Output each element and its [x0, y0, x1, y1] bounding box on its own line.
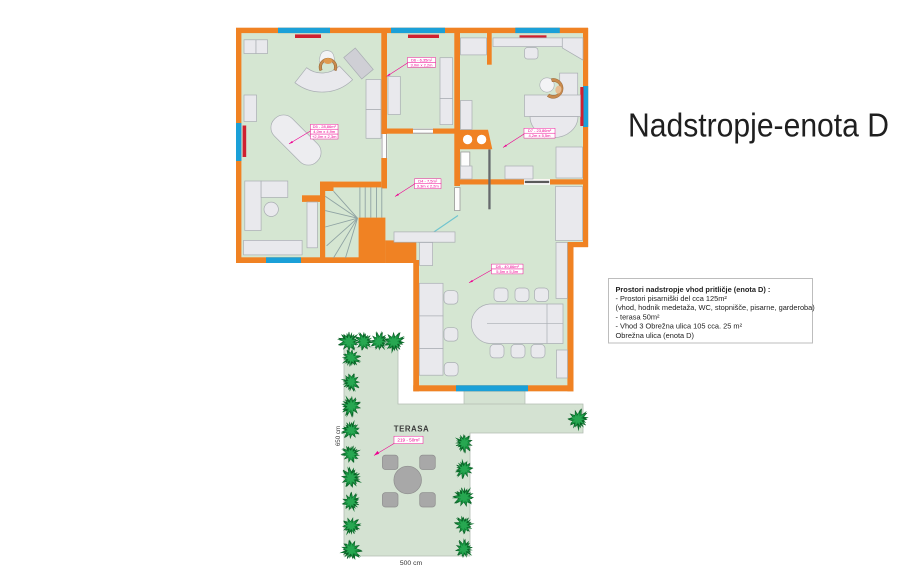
svg-text:650 cm: 650 cm — [335, 426, 342, 446]
svg-text:3,0m x 2,2m: 3,0m x 2,2m — [410, 62, 433, 67]
svg-text:- Vhod 3 Obrežna ulica 105 cc: - Vhod 3 Obrežna ulica 105 cca. 25 m² — [616, 322, 743, 331]
svg-text:Nadstropje-enota D: Nadstropje-enota D — [628, 107, 889, 144]
svg-text:3,3m x 2,2m: 3,3m x 2,2m — [417, 184, 440, 189]
svg-text:500 cm: 500 cm — [400, 560, 423, 567]
svg-text:Obrežna ulica (enota D): Obrežna ulica (enota D) — [616, 331, 694, 340]
svg-text:5,5m x 5,5m: 5,5m x 5,5m — [496, 269, 519, 274]
svg-text:Prostori nadstropje vhod pritl: Prostori nadstropje vhod pritličje (enot… — [616, 285, 771, 294]
svg-text:- Prostori pisarniški del cca: - Prostori pisarniški del cca 125m² — [616, 294, 728, 303]
svg-text:(vhod, hodnik medetaža, WC, st: (vhod, hodnik medetaža, WC, stopnišče, p… — [616, 303, 815, 312]
svg-text:+2,0m x 2,3m: +2,0m x 2,3m — [312, 134, 337, 139]
svg-text:- terasa 50m²: - terasa 50m² — [616, 312, 660, 321]
svg-text:TERASA: TERASA — [394, 425, 429, 434]
svg-text:219 - 50m²: 219 - 50m² — [397, 438, 420, 443]
svg-text:4,2m x 5,5m: 4,2m x 5,5m — [528, 133, 551, 138]
